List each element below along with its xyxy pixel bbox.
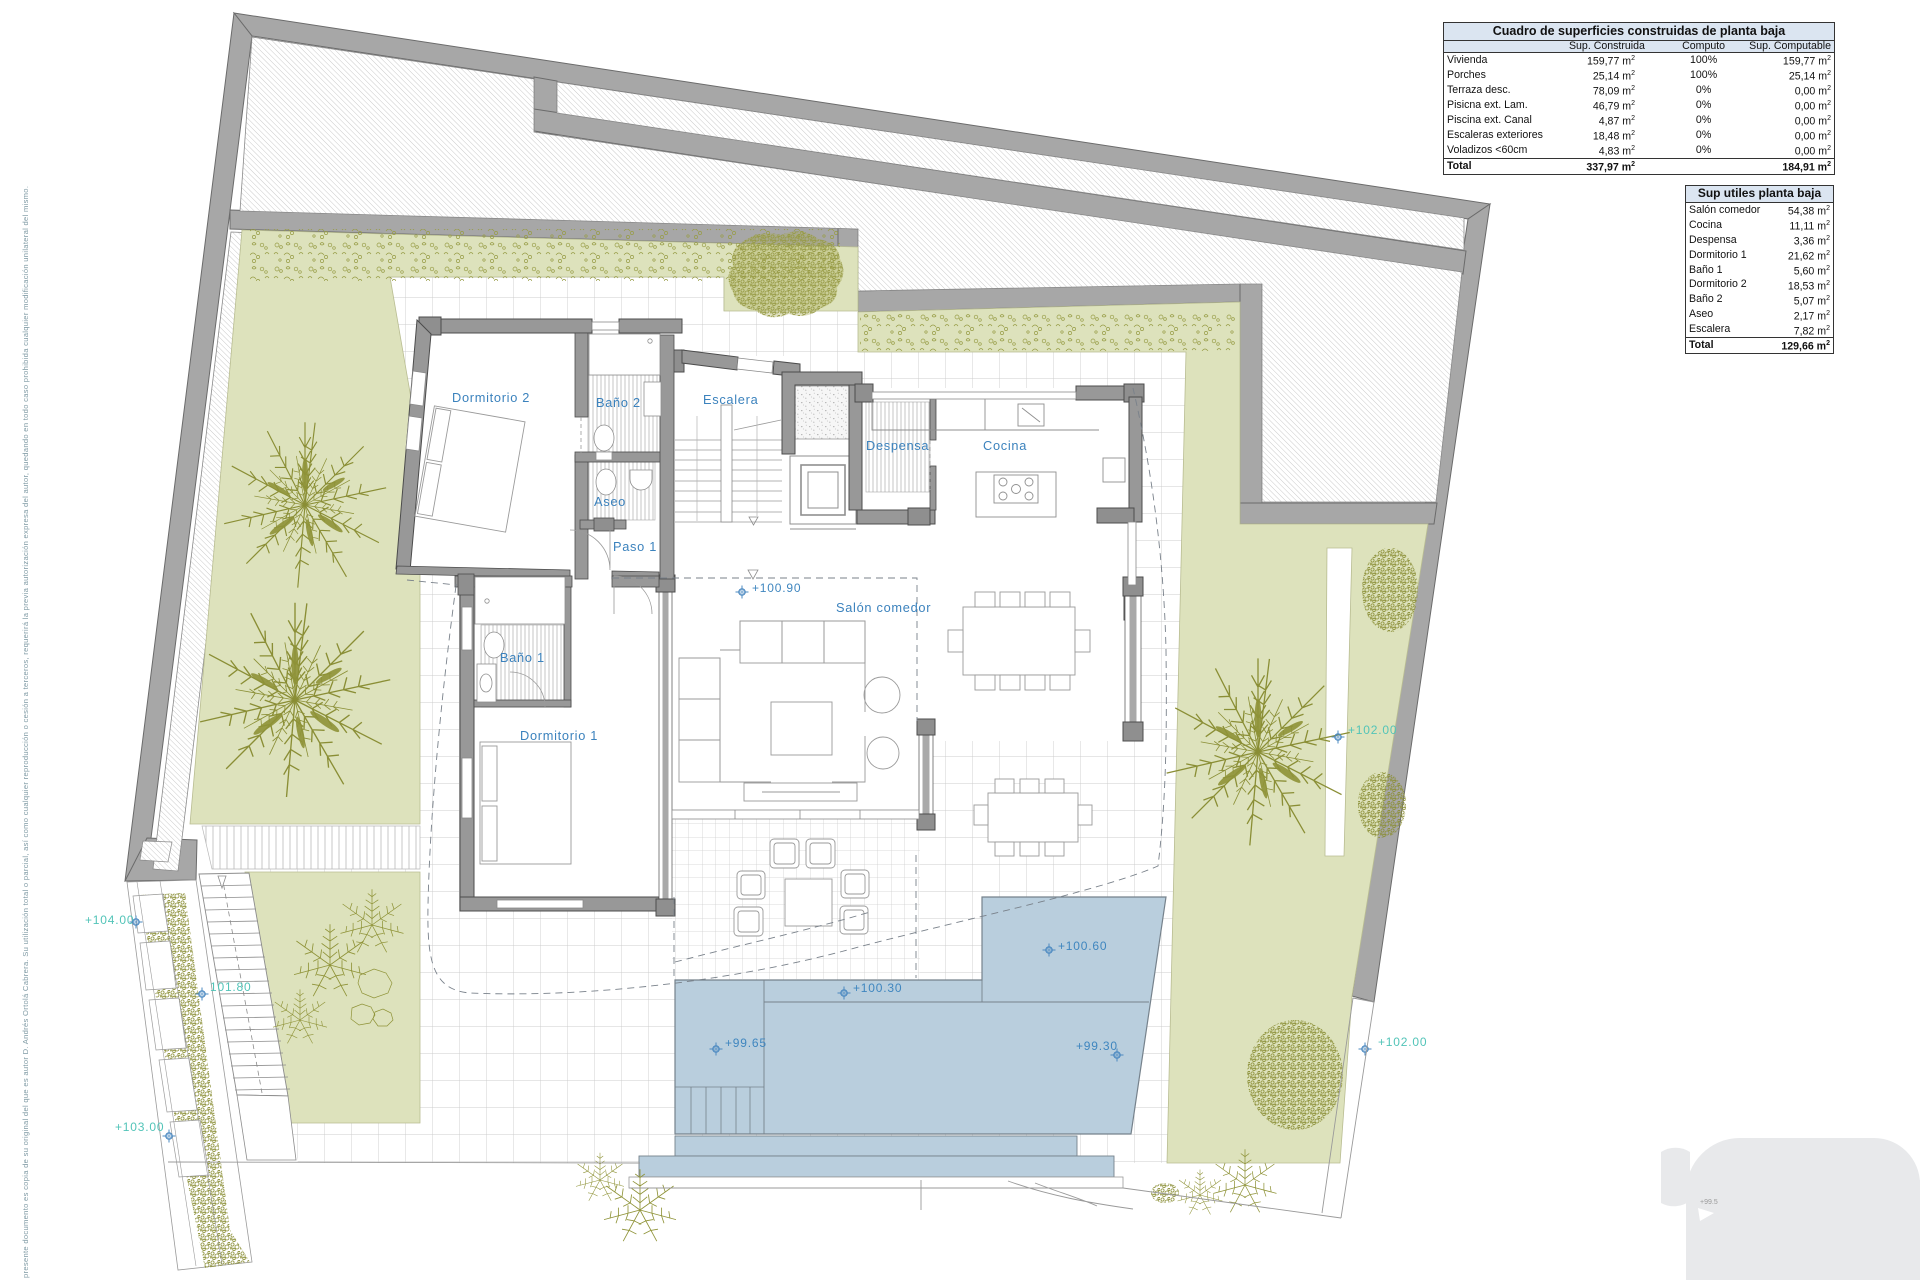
svg-text:+99.65: +99.65 bbox=[725, 1036, 767, 1050]
svg-text:Dormitorio 2: Dormitorio 2 bbox=[452, 390, 530, 405]
svg-text:+102.00: +102.00 bbox=[1378, 1035, 1427, 1049]
svg-text:+102.00: +102.00 bbox=[1348, 723, 1397, 737]
svg-text:Baño 1: Baño 1 bbox=[500, 650, 545, 665]
svg-text:Baño 2: Baño 2 bbox=[596, 395, 641, 410]
svg-text:Despensa: Despensa bbox=[866, 438, 929, 453]
svg-text:+99.30: +99.30 bbox=[1076, 1039, 1118, 1053]
svg-text:101.80: 101.80 bbox=[210, 980, 252, 994]
svg-text:Salón comedor: Salón comedor bbox=[836, 600, 931, 615]
svg-text:+100.30: +100.30 bbox=[853, 981, 902, 995]
svg-text:Cocina: Cocina bbox=[983, 438, 1027, 453]
svg-text:presente documento es copia de: presente documento es copia de su origin… bbox=[21, 186, 30, 1278]
svg-text:Aseo: Aseo bbox=[594, 494, 626, 509]
svg-text:+99.5: +99.5 bbox=[1700, 1199, 1718, 1206]
svg-text:Escalera: Escalera bbox=[703, 392, 759, 407]
svg-text:Paso 1: Paso 1 bbox=[613, 539, 657, 554]
svg-text:Dormitorio 1: Dormitorio 1 bbox=[520, 728, 598, 743]
svg-text:+103.00: +103.00 bbox=[115, 1120, 164, 1134]
svg-text:+100.90: +100.90 bbox=[752, 581, 801, 595]
svg-text:+100.60: +100.60 bbox=[1058, 939, 1107, 953]
svg-text:+104.00: +104.00 bbox=[85, 913, 134, 927]
